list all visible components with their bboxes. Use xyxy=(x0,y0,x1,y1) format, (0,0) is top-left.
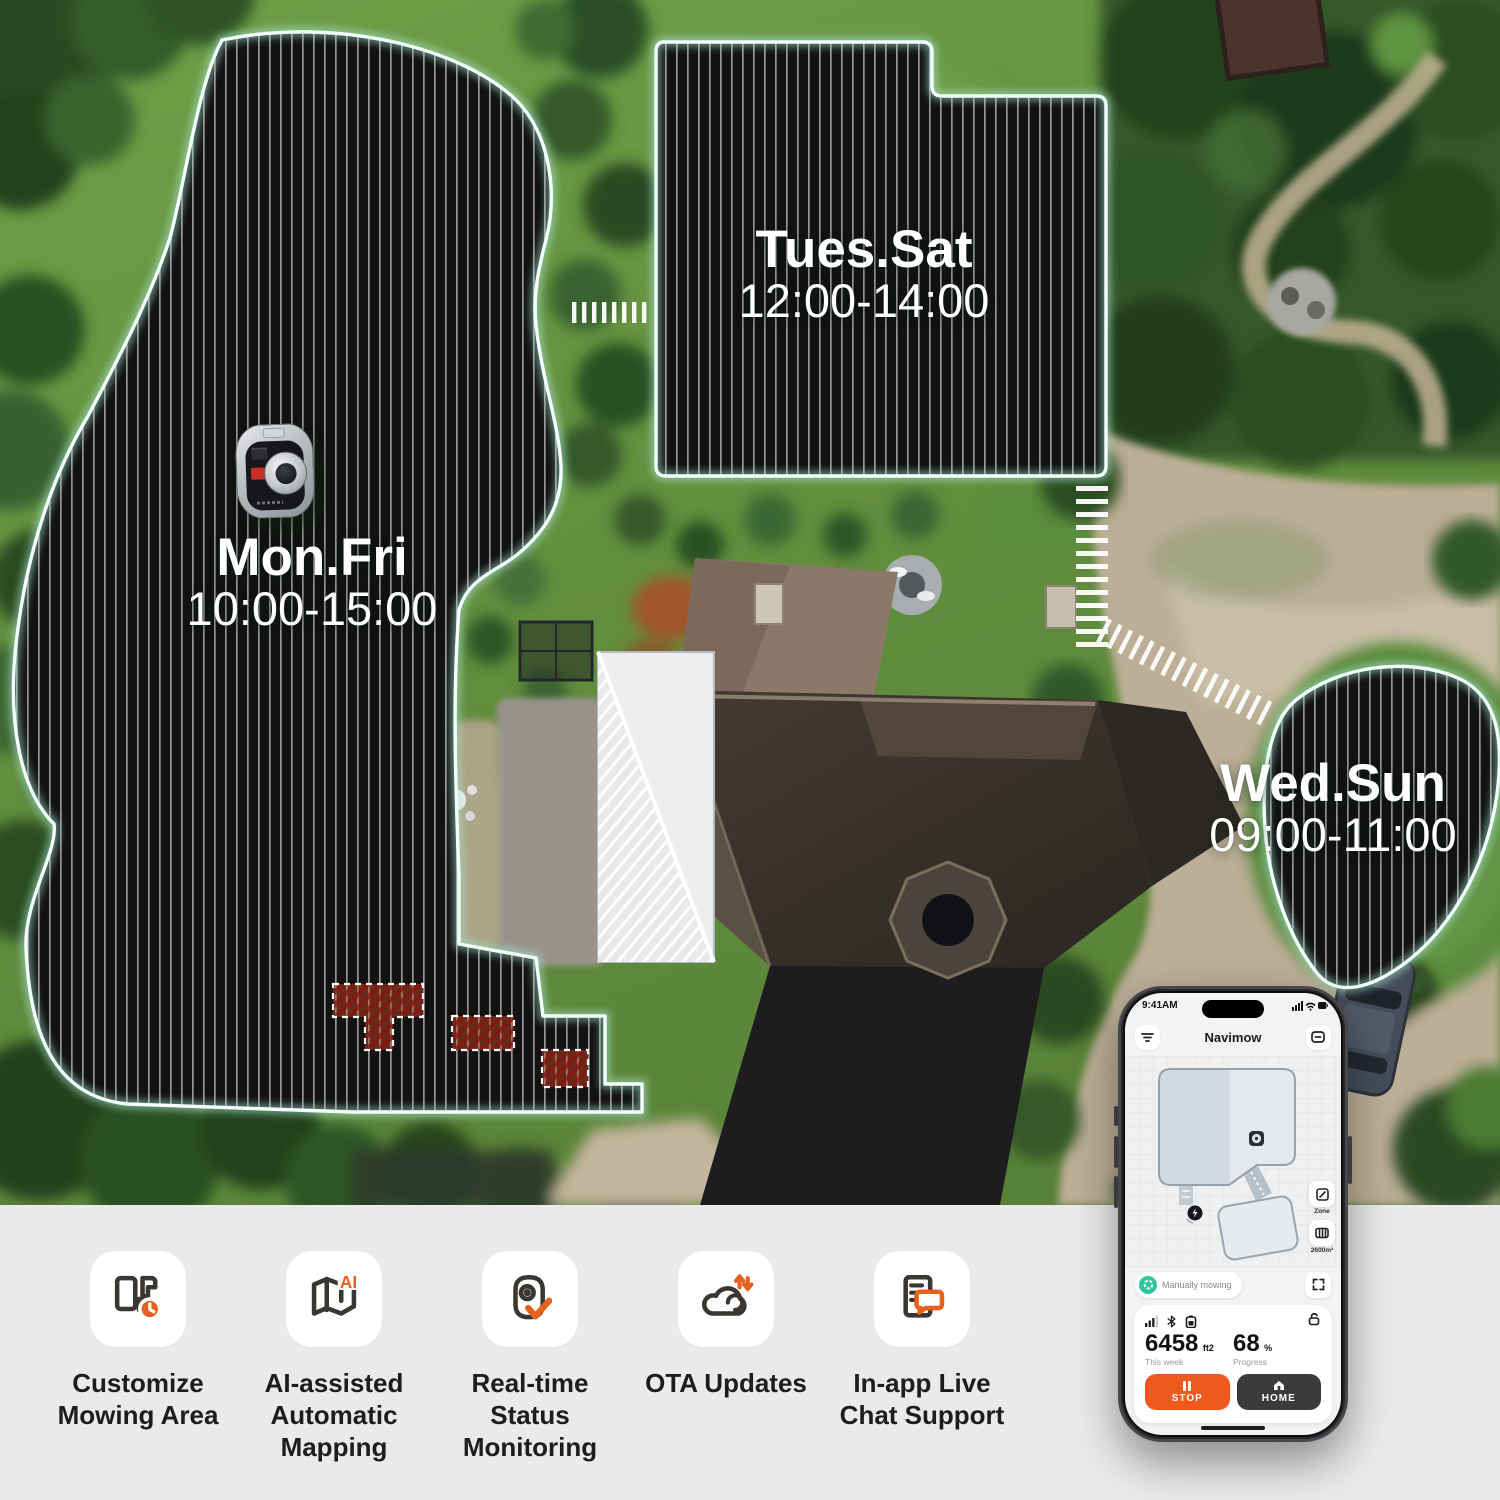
menu-button[interactable] xyxy=(1135,1025,1160,1050)
zone-b-label: Tues.Sat 12:00-14:00 xyxy=(739,222,990,326)
map-controls: Zone 2600m² xyxy=(1309,1181,1335,1259)
home-button-label: HOME xyxy=(1262,1393,1296,1404)
cloud-sync-icon xyxy=(697,1270,755,1328)
stats-card: 6458 ft2 This week 68 % Progress xyxy=(1134,1305,1332,1423)
device-icon xyxy=(1311,1031,1325,1043)
progress-stat: 68 % Progress xyxy=(1233,1331,1321,1367)
zone-button-label: Zone xyxy=(1314,1208,1330,1215)
area-map-icon xyxy=(1315,1227,1329,1239)
robot-marker xyxy=(1249,1131,1264,1146)
robot-mower-camera xyxy=(275,462,297,484)
phone-volume-down-button xyxy=(1114,1176,1118,1208)
signal-icon xyxy=(1292,1001,1303,1011)
stone-circle xyxy=(1268,268,1336,336)
zone-a-days: Mon.Fri xyxy=(187,530,438,585)
wifi-icon xyxy=(1307,1003,1315,1007)
phone-mute-switch xyxy=(1114,1106,1118,1126)
home-indicator[interactable] xyxy=(1201,1426,1265,1430)
zone-edit-icon xyxy=(1316,1188,1329,1201)
feature-tile xyxy=(874,1251,970,1347)
home-button[interactable]: HOME xyxy=(1237,1374,1322,1410)
dynamic-island xyxy=(1202,1000,1264,1018)
garden-hut-roof xyxy=(1216,0,1327,78)
folded-map-ai-icon: AI xyxy=(305,1270,363,1328)
feature-tile xyxy=(678,1251,774,1347)
progress-unit: % xyxy=(1264,1343,1272,1353)
zone-a-label: Mon.Fri 10:00-15:00 xyxy=(187,530,438,634)
feature-tile xyxy=(482,1251,578,1347)
feature-label: OTA Updates xyxy=(645,1367,807,1399)
area-value: 6458 xyxy=(1145,1330,1198,1357)
map-zones-clock-icon xyxy=(109,1270,167,1328)
stop-button-label: STOP xyxy=(1172,1393,1203,1404)
robot-mower-display xyxy=(251,447,267,460)
map-zone-1 xyxy=(1159,1069,1295,1185)
feature-label: Customize Mowing Area xyxy=(40,1367,236,1431)
feature-tile: AI xyxy=(286,1251,382,1347)
status-icons xyxy=(1292,1000,1328,1011)
robot-battery-icon xyxy=(1184,1315,1198,1328)
map-zone-2 xyxy=(1217,1195,1299,1261)
app-title: Navimow xyxy=(1204,1030,1261,1045)
greenhouse-frame xyxy=(520,622,592,680)
device-button[interactable] xyxy=(1306,1025,1331,1050)
feature-label: Real-time Status Monitoring xyxy=(432,1367,628,1464)
turret xyxy=(890,862,1006,978)
robot-mower-logo xyxy=(257,501,283,505)
mowing-spinner-icon xyxy=(1139,1276,1157,1294)
zone-c-time: 09:00-11:00 xyxy=(1209,811,1456,860)
lock-icon[interactable] xyxy=(1307,1312,1321,1331)
conservatory xyxy=(598,652,714,962)
progress-value: 68 xyxy=(1233,1330,1260,1357)
filter-menu-icon xyxy=(1141,1032,1154,1043)
stop-button[interactable]: STOP xyxy=(1145,1374,1230,1410)
map-status-row: Manually mowing xyxy=(1135,1271,1331,1298)
zone-c-days: Wed.Sun xyxy=(1209,756,1456,811)
product-hero-image: Mon.Fri 10:00-15:00 Tues.Sat 12:00-14:00… xyxy=(0,0,1500,1500)
zone-a-time: 10:00-15:00 xyxy=(187,585,438,634)
zone-b-time: 12:00-14:00 xyxy=(739,277,990,326)
mowing-map[interactable]: Zone 2600m² xyxy=(1125,1055,1341,1267)
battery-icon xyxy=(1318,1002,1328,1009)
signal-strength-icon xyxy=(1145,1315,1159,1327)
area-button[interactable] xyxy=(1309,1220,1335,1246)
chimney xyxy=(1046,586,1076,628)
feature-label: AI-assisted Automatic Mapping xyxy=(236,1367,432,1464)
home-icon xyxy=(1273,1380,1285,1391)
connection-icons xyxy=(1145,1314,1321,1328)
dock-marker xyxy=(1187,1206,1203,1224)
zone-button[interactable] xyxy=(1309,1181,1335,1207)
area-stat: 6458 ft2 This week xyxy=(1145,1331,1233,1367)
pause-icon xyxy=(1182,1381,1192,1391)
chimney xyxy=(755,584,783,624)
zone-b-days: Tues.Sat xyxy=(739,222,990,277)
feature-ai-assisted-automatic-mapping: AI AI-assisted Automatic Mapping xyxy=(236,1251,432,1464)
app-nav-bar: Navimow xyxy=(1135,1023,1331,1051)
feature-label: In-app Live Chat Support xyxy=(824,1367,1020,1431)
zone-c-label: Wed.Sun 09:00-11:00 xyxy=(1209,756,1456,860)
feature-real-time-status-monitoring: Real-time Status Monitoring xyxy=(432,1251,628,1464)
phone-mockup: 9:41AM xyxy=(1118,986,1348,1442)
area-caption: This week xyxy=(1145,1357,1233,1367)
stats-values: 6458 ft2 This week 68 % Progress xyxy=(1145,1331,1321,1367)
rock-garden xyxy=(1080,0,1500,470)
progress-caption: Progress xyxy=(1233,1357,1321,1367)
expand-icon xyxy=(1312,1278,1325,1291)
feature-ota-updates: OTA Updates xyxy=(628,1251,824,1464)
mower-check-icon xyxy=(501,1270,559,1328)
phone-volume-up-button xyxy=(1114,1136,1118,1168)
patio xyxy=(497,698,605,966)
action-buttons: STOP HOME xyxy=(1145,1374,1321,1410)
mowing-status-pill: Manually mowing xyxy=(1135,1272,1242,1298)
feature-list: Customize Mowing Area AI AI-assisted Aut… xyxy=(40,1251,1020,1464)
app-screen: 9:41AM xyxy=(1125,993,1341,1435)
area-button-label: 2600m² xyxy=(1311,1247,1333,1254)
fullscreen-button[interactable] xyxy=(1305,1272,1331,1298)
robot-mower-handle xyxy=(263,428,285,439)
bluetooth-icon xyxy=(1167,1315,1176,1328)
document-chat-icon xyxy=(893,1270,951,1328)
feature-tile xyxy=(90,1251,186,1347)
status-time: 9:41AM xyxy=(1142,1000,1178,1011)
mowing-status-text: Manually mowing xyxy=(1162,1280,1232,1290)
feature-in-app-live-chat-support: In-app Live Chat Support xyxy=(824,1251,1020,1464)
phone-power-button xyxy=(1348,1136,1352,1184)
ai-badge: AI xyxy=(340,1272,357,1292)
robot-mower xyxy=(234,423,315,520)
feature-customize-mowing-area: Customize Mowing Area xyxy=(40,1251,236,1464)
area-unit: ft2 xyxy=(1203,1343,1214,1353)
